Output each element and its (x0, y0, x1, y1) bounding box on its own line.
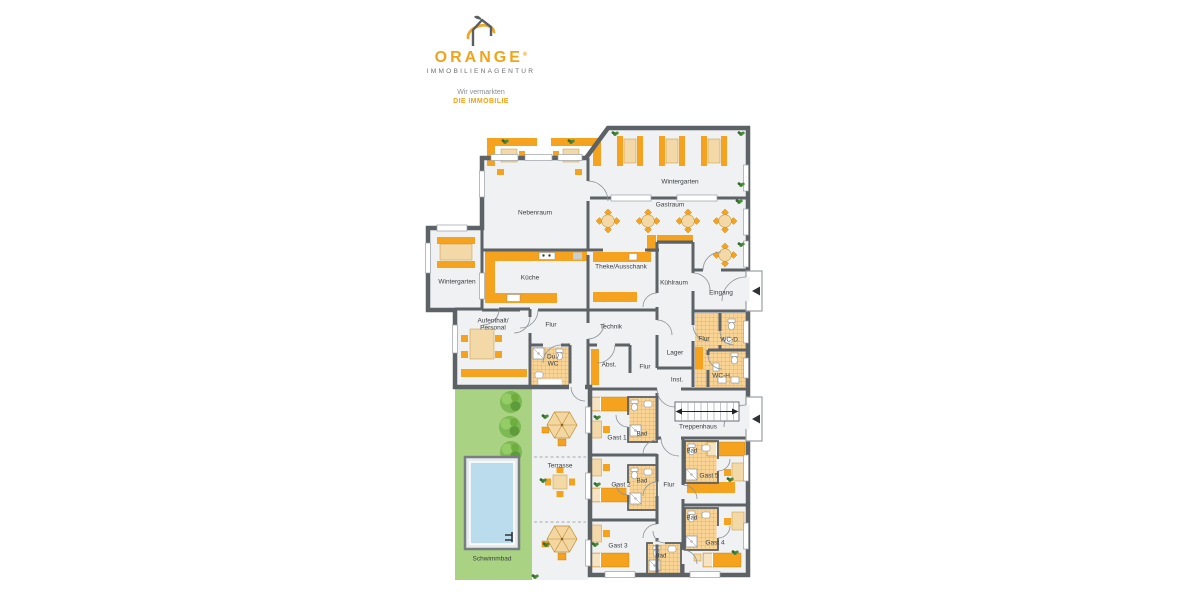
brand-name: ORANGE® (421, 50, 541, 66)
floor-plan-graphic (425, 125, 770, 583)
tagline: Wir vermarkten DIE IMMOBILIE (421, 89, 541, 105)
wintergarten-left-furniture (437, 237, 475, 268)
logo: ORANGE® IMMOBILIENAGENTUR Wir vermarkten… (421, 14, 541, 105)
page: { "logo": { "brand": "ORANGE", "register… (0, 0, 1200, 600)
registered-mark: ® (523, 52, 527, 58)
terrace (532, 389, 588, 580)
wintergarten-top-furniture (617, 136, 727, 166)
storage-shelf (591, 349, 599, 385)
swimming-pool (465, 457, 519, 549)
stairs (675, 402, 739, 421)
tagline-line2: DIE IMMOBILIE (421, 98, 541, 105)
tagline-line1: Wir vermarkten (421, 89, 541, 96)
brand-subtitle: IMMOBILIENAGENTUR (421, 68, 541, 75)
logo-house-icon (462, 14, 500, 48)
floor-plan: Wintergarten Gastraum Nebenraum Winterga… (425, 125, 770, 583)
